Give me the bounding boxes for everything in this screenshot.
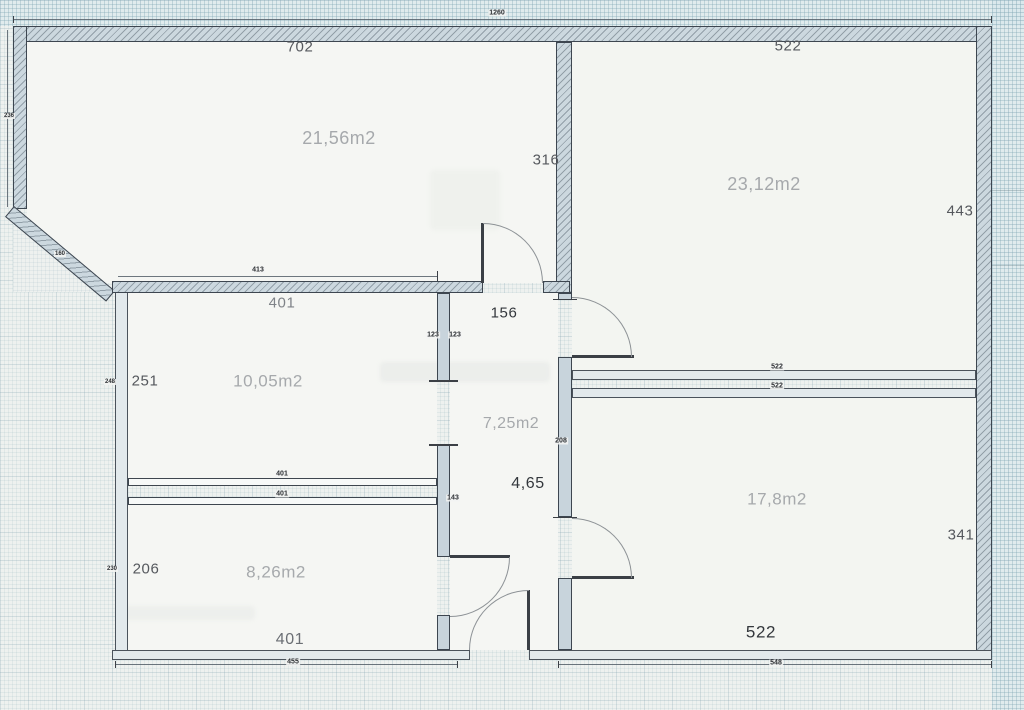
opening-tick <box>429 444 458 446</box>
dim-label-401-bottom: 401 <box>276 632 305 648</box>
tiny-dim-160: 160 <box>54 251 66 257</box>
tiny-dim-236: 236 <box>3 113 15 119</box>
dim-label-443: 443 <box>947 204 974 219</box>
wall-outer-left-lower <box>115 288 128 660</box>
room-area-top-right: 23,12m2 <box>727 175 801 193</box>
tiny-dim-143: 143 <box>446 495 460 502</box>
tiny-dim-208: 208 <box>554 438 568 445</box>
dim-label-156: 156 <box>491 306 518 321</box>
dim-tick <box>991 661 992 668</box>
dim-label-401-mid: 401 <box>269 296 296 311</box>
wall-outer-left-upper <box>13 26 27 209</box>
tiny-dim-522-upper: 522 <box>770 364 784 371</box>
dimension-line-top <box>13 19 992 20</box>
tiny-dim-401-upper: 401 <box>275 471 289 478</box>
wall-left-double-upper <box>128 478 437 486</box>
dim-label-522-top: 522 <box>775 39 802 54</box>
tiny-dim-total-top: 1260 <box>488 10 506 17</box>
room-bottom-right-floor <box>572 398 976 650</box>
wall-right-double-upper <box>572 370 976 380</box>
room-top-right-floor <box>572 42 976 370</box>
dim-tick <box>115 661 116 668</box>
tiny-dim-230: 230 <box>106 566 118 572</box>
watermark-smudge <box>115 606 255 620</box>
wall-hall-left-seg3 <box>437 615 450 650</box>
tiny-dim-401-lower: 401 <box>275 491 289 498</box>
wall-outer-top <box>13 26 992 42</box>
dim-label-316: 316 <box>533 153 560 168</box>
grid-strip-right <box>992 0 1024 710</box>
dim-label-4-65: 4,65 <box>511 476 545 492</box>
tiny-dim-413: 413 <box>251 267 265 274</box>
dim-tick <box>437 271 438 281</box>
dim-tick <box>558 661 559 668</box>
watermark-smudge <box>380 362 550 382</box>
dim-tick <box>457 661 458 668</box>
dim-label-702: 702 <box>287 40 314 55</box>
tiny-dim-123-left: 123 <box>426 332 440 339</box>
grid-strip-top <box>0 0 1024 26</box>
dim-label-251: 251 <box>132 374 159 389</box>
tiny-dim-548: 548 <box>769 660 783 667</box>
tiny-dim-123-right: 123 <box>448 332 462 339</box>
tiny-dim-455: 455 <box>286 659 300 666</box>
watermark-smudge <box>430 170 500 230</box>
dimension-line-413 <box>118 276 438 277</box>
room-area-top-left: 21,56m2 <box>302 129 376 147</box>
room-top-left-floor <box>27 40 556 283</box>
dim-tick <box>13 16 14 23</box>
opening-tick <box>429 380 458 382</box>
dim-label-206: 206 <box>133 562 160 577</box>
wall-right-double-lower <box>572 388 976 398</box>
wall-top-room-bottom-right-seg <box>543 281 570 293</box>
wall-top-room-bottom-left-seg <box>112 281 483 293</box>
dim-tick <box>991 16 992 23</box>
room-area-hallway: 7,25m2 <box>483 416 539 432</box>
grid-edge-line <box>992 265 1024 266</box>
tiny-dim-248: 248 <box>104 379 116 385</box>
dim-label-522-bottom: 522 <box>746 624 776 641</box>
floor-plan: 1260 413 236 160 123 123 248 522 522 208… <box>0 0 1024 710</box>
room-area-mid-left: 10,05m2 <box>233 373 303 390</box>
grid-edge-line <box>992 190 1024 191</box>
room-area-bottom-right: 17,8m2 <box>747 491 807 508</box>
wall-outer-bottom-right <box>529 650 992 660</box>
wall-outer-right <box>976 26 992 660</box>
wall-left-double-lower <box>128 497 437 505</box>
tiny-dim-522-lower: 522 <box>770 383 784 390</box>
wall-hall-right-seg3 <box>558 578 572 650</box>
dim-label-341: 341 <box>948 528 975 543</box>
room-area-bottom-left: 8,26m2 <box>246 564 306 581</box>
